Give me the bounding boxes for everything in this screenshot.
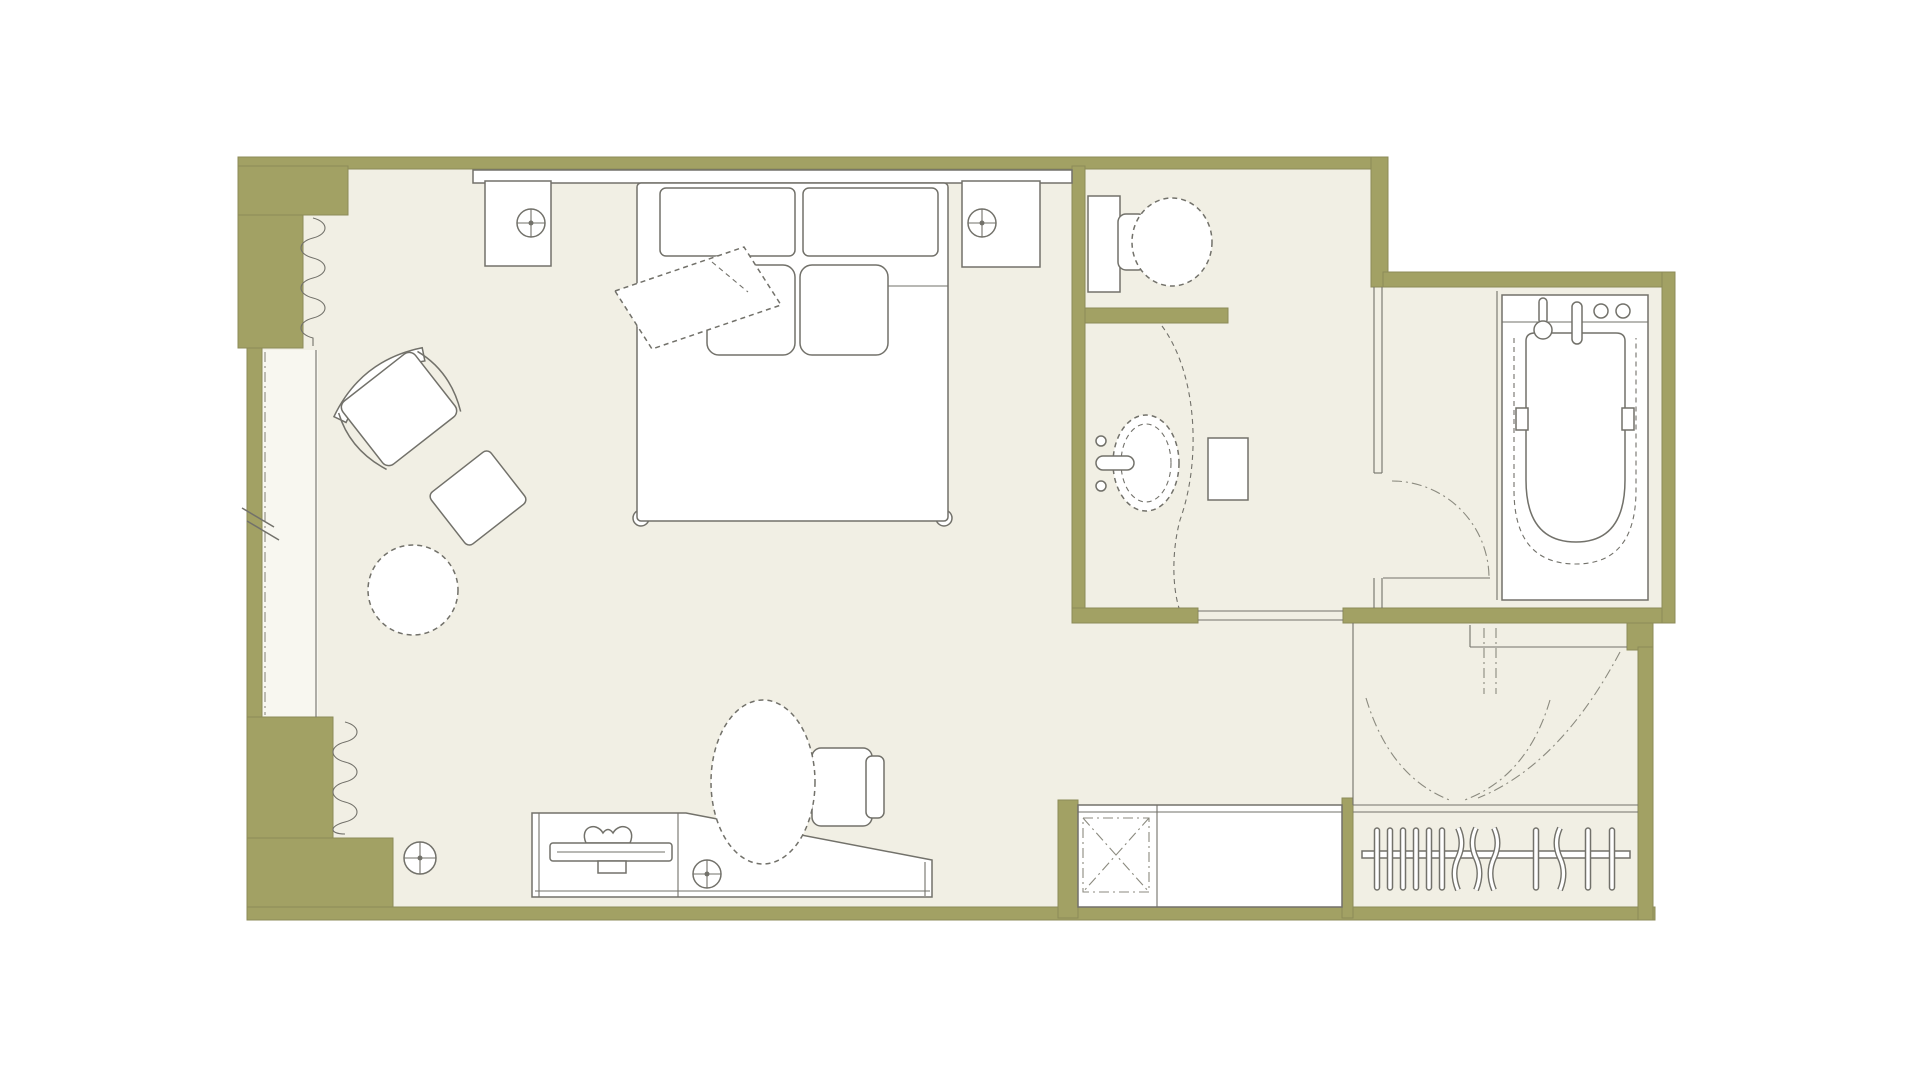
wall-bottomleft-block-a bbox=[247, 717, 333, 838]
tub-armrest-right bbox=[1622, 408, 1634, 430]
desk-chair-seat bbox=[711, 700, 815, 864]
wall-closet-divider bbox=[1342, 798, 1353, 918]
bathroom-shelf-box bbox=[1208, 438, 1248, 500]
wall-tubroom-right bbox=[1662, 272, 1675, 623]
hanger bbox=[1586, 828, 1591, 890]
wall-topleft-block-a bbox=[238, 166, 348, 215]
headboard-cushion-right bbox=[803, 188, 938, 256]
wall-window-mullion bbox=[247, 348, 262, 717]
round-side-table bbox=[368, 545, 458, 635]
sink-handle-bottom bbox=[1096, 481, 1106, 491]
toilet-bowl bbox=[1132, 198, 1212, 286]
wall-tubroom-top bbox=[1383, 272, 1675, 287]
table-lamp-right bbox=[968, 209, 996, 237]
wall-counter-stub bbox=[1058, 800, 1078, 918]
pillow-right bbox=[800, 265, 888, 355]
toilet bbox=[1088, 196, 1212, 292]
table-lamp-left bbox=[517, 209, 545, 237]
vestibule-floor bbox=[1353, 623, 1638, 907]
telephone-handset bbox=[584, 827, 631, 843]
wall-bottom bbox=[247, 907, 1655, 920]
hanger bbox=[1375, 828, 1380, 890]
sink-handle-top bbox=[1096, 436, 1106, 446]
wall-bathroom-bottom-right bbox=[1343, 608, 1675, 623]
desk-chair-back bbox=[812, 748, 872, 826]
counter-group bbox=[1078, 805, 1342, 907]
tub-handle-1 bbox=[1594, 304, 1608, 318]
tub-lever-knob bbox=[1534, 321, 1552, 339]
desk-lamp bbox=[693, 860, 721, 888]
headboard-cushion-left bbox=[660, 188, 795, 256]
hanger bbox=[1610, 828, 1615, 890]
hanger bbox=[1440, 828, 1445, 890]
wall-bathroom-left bbox=[1072, 166, 1085, 608]
desk-chair-lumbar bbox=[866, 756, 884, 818]
wall-bathroom-bottom-left bbox=[1072, 608, 1198, 623]
wall-top bbox=[238, 157, 1388, 169]
tub-handle-2 bbox=[1616, 304, 1630, 318]
tub-basin bbox=[1526, 333, 1625, 542]
floor-lamp bbox=[404, 842, 436, 874]
telephone-base bbox=[598, 861, 626, 873]
wall-closet-right bbox=[1638, 647, 1653, 920]
luggage-counter bbox=[1078, 805, 1342, 907]
toilet-tank bbox=[1088, 196, 1120, 292]
balcony-floor bbox=[262, 350, 318, 717]
floor-plan-canvas bbox=[0, 0, 1920, 1080]
tub-lever bbox=[1539, 298, 1547, 324]
floor-plan bbox=[0, 0, 1920, 1080]
hanger bbox=[1534, 828, 1539, 890]
bathtub bbox=[1502, 295, 1648, 600]
wall-topleft-block-b bbox=[238, 215, 303, 348]
hanger bbox=[1401, 828, 1406, 890]
hanger bbox=[1388, 828, 1393, 890]
wall-entry-notch bbox=[1627, 623, 1653, 650]
hanger bbox=[1414, 828, 1419, 890]
tub-armrest-left bbox=[1516, 408, 1528, 430]
sink-faucet bbox=[1096, 456, 1134, 470]
wall-bottomleft-block-b bbox=[247, 838, 393, 908]
hanger bbox=[1427, 828, 1432, 890]
wall-bathroom-stub bbox=[1085, 308, 1228, 323]
tub-spout bbox=[1572, 302, 1582, 344]
wall-bathroom-right-jamb bbox=[1371, 157, 1388, 287]
